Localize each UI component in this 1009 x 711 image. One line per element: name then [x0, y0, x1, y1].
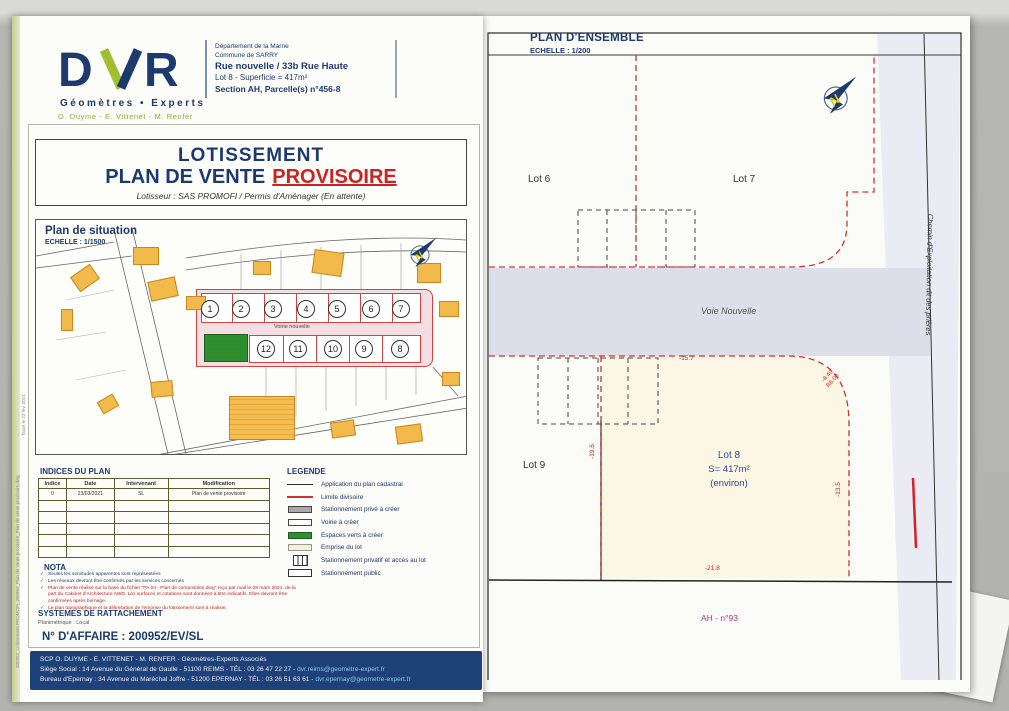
page-right-plan-densemble: PLAN D'ENSEMBLE ECHELLE : 1/200 N Lot 6 … — [483, 16, 970, 692]
legend-title: LEGENDE — [287, 467, 326, 476]
footer-banner: SCP O. DUYME - E. VITTENET - M. RENFER -… — [30, 651, 482, 690]
table-row — [39, 546, 270, 558]
info-lot-superficie: Lot 8 - Superficie = 417m² — [215, 73, 387, 84]
legend-item: Emprise du lot — [287, 541, 482, 554]
scanned-plan-document: 200952_Lotissement PROMOFI_200952_Plan d… — [0, 0, 1009, 711]
lot-circle-8: 8 — [391, 340, 409, 358]
lot-circle-7: 7 — [392, 300, 410, 318]
indices-col-indice: Indice — [39, 479, 67, 489]
dim-top: -15.7 — [679, 355, 694, 362]
legend-item: Stationnement public — [287, 567, 482, 580]
building — [330, 419, 356, 438]
building — [229, 396, 295, 440]
building — [395, 423, 423, 444]
nota-item: ✓Plan de vente réalisé sur la base du fi… — [40, 586, 302, 604]
building — [442, 372, 460, 386]
lot9-label: Lot 9 — [523, 460, 545, 471]
nota-list: ✓Seules les servitudes apparentes sont r… — [40, 572, 302, 613]
legend-symbol-cream-rect — [287, 544, 313, 551]
legend-symbol-green-rect — [287, 532, 313, 539]
building — [61, 309, 73, 331]
info-section-parcelle: Section AH, Parcelle(s) n°456-8 — [215, 84, 387, 95]
lot6-label: Lot 6 — [528, 174, 550, 185]
logo-tagline: Géomètres • Experts — [60, 98, 206, 109]
legend-item: Stationnement privatif et accès au lot — [287, 554, 482, 567]
building — [133, 247, 159, 265]
footer-line3: Bureau d'Epernay : 34 Avenue du Maréchal… — [40, 675, 472, 685]
footer-line2: Siège Social : 14 Avenue du Général de G… — [40, 665, 472, 675]
legend-item: Espaces verts à créer — [287, 529, 482, 542]
building — [439, 301, 459, 317]
info-adresse: Rue nouvelle / 33b Rue Haute — [215, 61, 387, 73]
affaire-number: N° D'AFFAIRE : 200952/EV/SL — [42, 631, 203, 643]
indices-col-intervenant: Intervenant — [114, 479, 168, 489]
info-commune: Commune de SARRY — [215, 52, 387, 61]
lot-circle-9: 9 — [355, 340, 373, 358]
table-row — [39, 500, 270, 512]
footer-line1: SCP O. DUYME - E. VITTENET - M. RENFER -… — [40, 655, 472, 665]
logo-partners: O. Duyme - E. Vittenet - M. Renfer — [58, 112, 193, 121]
nota-title: NOTA — [44, 563, 66, 572]
epernay-email: dvr.epernay@geometre-expert.fr — [315, 676, 410, 683]
info-departement: Département de la Marne — [215, 43, 387, 52]
reims-email: dvr.reims@geometre-expert.fr — [297, 666, 385, 673]
title-plan-de-vente: PLAN DE VENTEPROVISOIRE — [36, 167, 466, 187]
indices-table: Indice Date Intervenant Modification 0 2… — [38, 478, 270, 558]
building — [311, 249, 344, 277]
legend-symbol-black-line — [287, 484, 313, 486]
rattachement-sub: Planimétrique : Local — [38, 620, 89, 626]
rattachement-title: SYSTEMES DE RATTACHEMENT — [38, 609, 163, 618]
north-arrow-icon: N — [813, 72, 861, 120]
table-row: 0 23/03/2021 SL Plan de vente provisoire — [39, 489, 270, 501]
lot-circle-6: 6 — [362, 300, 380, 318]
building — [150, 380, 173, 398]
lot-circle-11: 11 — [289, 340, 307, 358]
project-info-block: Département de la Marne Commune de SARRY… — [205, 40, 397, 98]
indices-col-date: Date — [66, 479, 114, 489]
situation-scale: ECHELLE : 1/1500 — [45, 239, 105, 246]
lot-circle-12: 12 — [257, 340, 275, 358]
legend-symbol-gray-rect — [287, 506, 313, 513]
dvr-logo-icon: D R — [58, 42, 190, 96]
legend: Application du plan cadastral Limite div… — [287, 478, 482, 580]
table-row — [39, 512, 270, 524]
ensemble-map-layer — [487, 24, 963, 680]
dvr-logo: D R Géomètres • Experts O. Duyme - E. Vi… — [58, 42, 208, 132]
situation-title: Plan de situation — [45, 225, 137, 237]
lot-circle-4: 4 — [297, 300, 315, 318]
north-arrow-icon: N — [402, 234, 440, 272]
table-row — [39, 523, 270, 535]
title-lotissement: LOTISSEMENT — [36, 145, 466, 167]
lot7-label: Lot 7 — [733, 174, 755, 185]
voie-nouvelle-label: Voie Nouvelle — [701, 306, 756, 316]
section-ah-label: AH - n°93 — [701, 613, 738, 623]
title-box: LOTISSEMENT PLAN DE VENTEPROVISOIRE Loti… — [35, 139, 467, 206]
legend-symbol-white-rect — [287, 519, 313, 526]
title-plan-de-vente-text: PLAN DE VENTE — [105, 166, 265, 188]
espace-vert — [204, 334, 248, 362]
plot-stamp-date: Tracé le 23 fév. 2021 — [21, 394, 26, 436]
svg-text:R: R — [144, 44, 179, 96]
legend-item: Application du plan cadastral — [287, 478, 482, 491]
indices-title: INDICES DU PLAN — [40, 467, 110, 476]
ensemble-scale: ECHELLE : 1/200 — [530, 46, 590, 55]
legend-symbol-bars-rect — [287, 555, 313, 566]
nota-item: ✓Seules les servitudes apparentes sont r… — [40, 572, 302, 578]
legend-item: Limite divisoire — [287, 491, 482, 504]
indices-col-modification: Modification — [168, 479, 269, 489]
lot-circle-3: 3 — [264, 300, 282, 318]
nota-item: ✓Les réseaux devront être confirmés par … — [40, 579, 302, 585]
title-lotisseur: Lotisseur : SAS PROMOFI / Permis d'Aména… — [36, 191, 466, 201]
lot-circle-1: 1 — [201, 300, 219, 318]
title-provisoire: PROVISOIRE — [272, 166, 396, 188]
lot-circle-10: 10 — [324, 340, 342, 358]
dim-left: -19.6 — [589, 444, 596, 459]
building — [253, 261, 271, 275]
dim-bottom: -21.8 — [705, 565, 720, 572]
lot8-label: Lot 8 S= 417m² (environ) — [679, 448, 779, 492]
dim-right: -13.5 — [835, 482, 842, 497]
legend-item: Stationnement privé à créer — [287, 503, 482, 516]
legend-symbol-red-line — [287, 496, 313, 498]
lot-circle-5: 5 — [328, 300, 346, 318]
legend-item: Voirie à créer — [287, 516, 482, 529]
plot-stamp-filepath: 200952_Lotissement PROMOFI_200952_Plan d… — [15, 475, 20, 668]
table-row — [39, 535, 270, 547]
svg-text:D: D — [58, 44, 93, 96]
ensemble-title: PLAN D'ENSEMBLE — [530, 32, 644, 44]
page-left-plan-de-vente: 200952_Lotissement PROMOFI_200952_Plan d… — [12, 16, 483, 702]
voirie-nouvelle-label: Voirie nouvelle — [274, 324, 310, 330]
lot-circle-2: 2 — [232, 300, 250, 318]
situation-map: Plan de situation ECHELLE : 1/1500 — [35, 219, 467, 455]
